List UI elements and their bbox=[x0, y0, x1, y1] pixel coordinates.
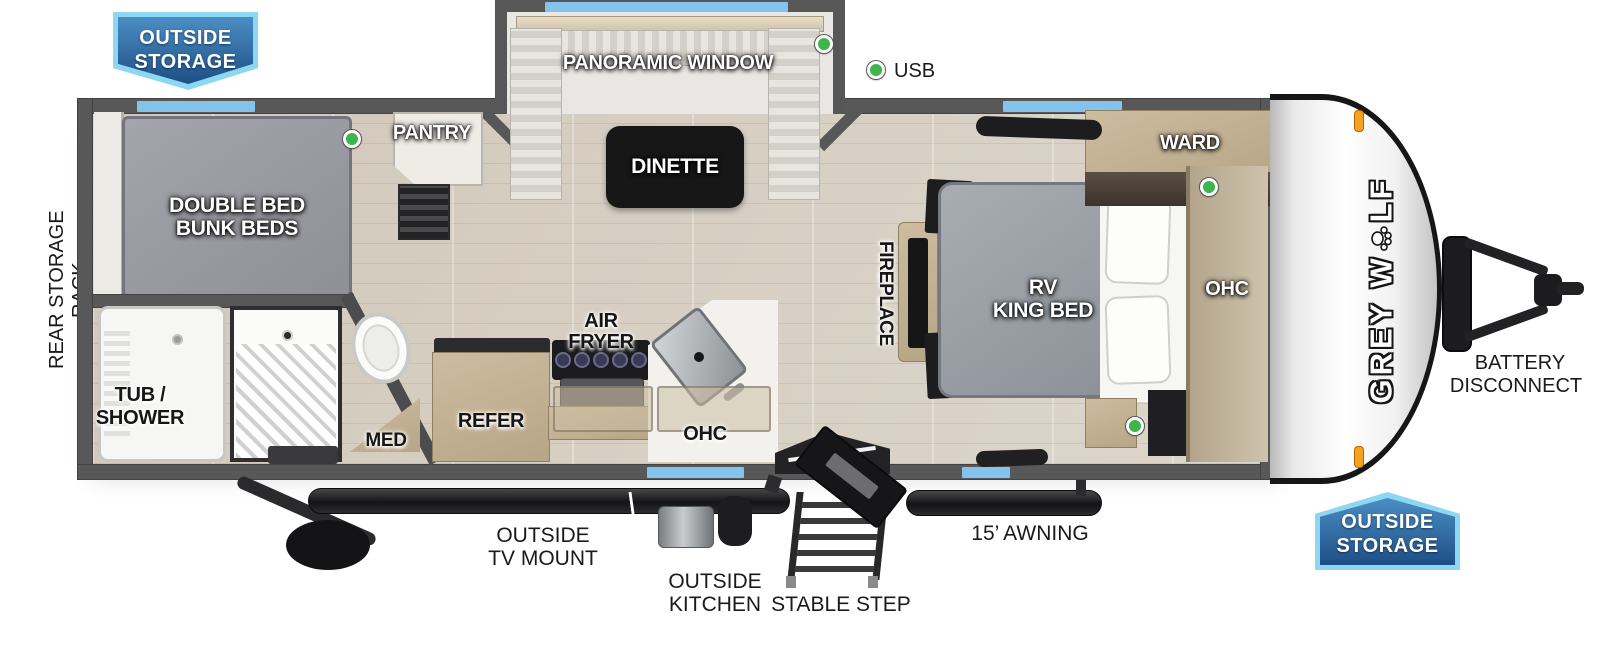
awning-roller-right bbox=[906, 490, 1102, 516]
bunk-label-line1: DOUBLE BED bbox=[122, 194, 352, 218]
hitch-arm-bottom bbox=[1463, 303, 1549, 342]
led-indicator-icon bbox=[867, 61, 885, 79]
battery-disconnect-label-line2: DISCONNECT bbox=[1436, 375, 1596, 398]
burner-icon bbox=[555, 352, 571, 368]
awning-bracket bbox=[1076, 480, 1086, 496]
led-indicator-icon bbox=[815, 35, 833, 53]
tub-shower-label-line2: SHOWER bbox=[80, 407, 200, 430]
usb-label: USB bbox=[894, 60, 948, 83]
king-bed-label-line2: KING BED bbox=[958, 299, 1128, 323]
shower-door bbox=[236, 344, 336, 458]
air-fryer-label-line1: AIR bbox=[570, 310, 632, 333]
panoramic-window-label: PANORAMIC WINDOW bbox=[540, 52, 796, 75]
air-fryer-label-line2: FRYER bbox=[562, 331, 640, 354]
bedroom-tv-bottom bbox=[976, 449, 1049, 468]
burner-icon bbox=[593, 352, 609, 368]
outside-storage-badge-rear: OUTSIDE STORAGE bbox=[113, 12, 258, 90]
outside-kitchen-griddle bbox=[658, 506, 714, 548]
tv-mount-label-line2: TV MOUNT bbox=[463, 547, 623, 571]
rear-storage-rack-label: REAR STORAGE RACK bbox=[46, 188, 74, 392]
outside-storage-badge-front: OUTSIDE STORAGE bbox=[1315, 492, 1460, 570]
tv-mount-label-line1: OUTSIDE bbox=[463, 524, 623, 548]
kitchen-ohc-label: OHC bbox=[655, 423, 755, 446]
bunk-label-line2: BUNK BEDS bbox=[122, 217, 352, 241]
window-kitchen-bottom bbox=[647, 467, 744, 478]
badge-text-line2: STORAGE bbox=[134, 51, 236, 74]
dinette-label: DINETTE bbox=[631, 155, 719, 179]
badge-text-line1: OUTSIDE bbox=[1341, 511, 1433, 534]
floorplan-diagram: REAR STORAGE RACK PANORAMIC WINDOW DINET… bbox=[0, 0, 1600, 648]
badge-text-line1: OUTSIDE bbox=[139, 27, 231, 50]
paw-print-icon bbox=[1369, 225, 1395, 251]
ladder-foot bbox=[868, 576, 878, 588]
window-bunk bbox=[137, 101, 255, 112]
tub-shower-label-line1: TUB / bbox=[90, 384, 190, 407]
hitch-pin bbox=[1556, 282, 1584, 295]
led-indicator-icon bbox=[1126, 417, 1144, 435]
refer-label: REFER bbox=[432, 410, 550, 433]
burner-icon bbox=[612, 352, 628, 368]
king-bed-label-line1: RV bbox=[958, 276, 1128, 300]
brand-logo-text-right: LF bbox=[1364, 176, 1400, 222]
bedroom-ohc-label: OHC bbox=[1194, 278, 1260, 301]
window-panoramic bbox=[545, 2, 788, 12]
led-indicator-icon bbox=[1200, 178, 1218, 196]
bunk-wardrobe-panel bbox=[94, 112, 124, 300]
med-label: MED bbox=[358, 430, 414, 452]
fireplace-screen bbox=[908, 238, 928, 348]
hitch-arm-top bbox=[1463, 237, 1549, 276]
outside-kitchen-tank bbox=[718, 496, 752, 546]
awning-label: 15’ AWNING bbox=[950, 522, 1110, 546]
outside-kitchen-label-line1: OUTSIDE bbox=[635, 570, 795, 594]
led-indicator-icon bbox=[343, 130, 361, 148]
shower-head-icon bbox=[282, 330, 293, 341]
bed-pillow bbox=[1104, 195, 1171, 285]
fireplace-label: FIREPLACE bbox=[872, 228, 896, 358]
window-bedroom-bottom bbox=[962, 467, 1010, 478]
pantry-shelves bbox=[398, 184, 450, 240]
ward-label: WARD bbox=[1128, 132, 1252, 155]
badge-text-line2: STORAGE bbox=[1336, 535, 1438, 558]
brand-logo: GREY W LF bbox=[1302, 110, 1462, 470]
battery-disconnect-label-line1: BATTERY bbox=[1445, 352, 1595, 375]
stable-step-label: STABLE STEP bbox=[761, 593, 921, 617]
overhead-cabinet-left bbox=[553, 386, 653, 432]
pantry-label: PANTRY bbox=[384, 122, 480, 145]
burner-icon bbox=[574, 352, 590, 368]
brand-logo-text-left: GREY W bbox=[1364, 254, 1400, 403]
rear-stabilizer-pad bbox=[286, 520, 370, 570]
burner-icon bbox=[631, 352, 647, 368]
bedroom-ohc-cabinet bbox=[1186, 166, 1268, 462]
refrigerator bbox=[432, 352, 550, 462]
tub-drain-icon bbox=[172, 334, 183, 345]
bath-vanity bbox=[268, 446, 338, 464]
dinette-table: DINETTE bbox=[606, 126, 744, 208]
sink-drain-icon bbox=[694, 352, 704, 362]
